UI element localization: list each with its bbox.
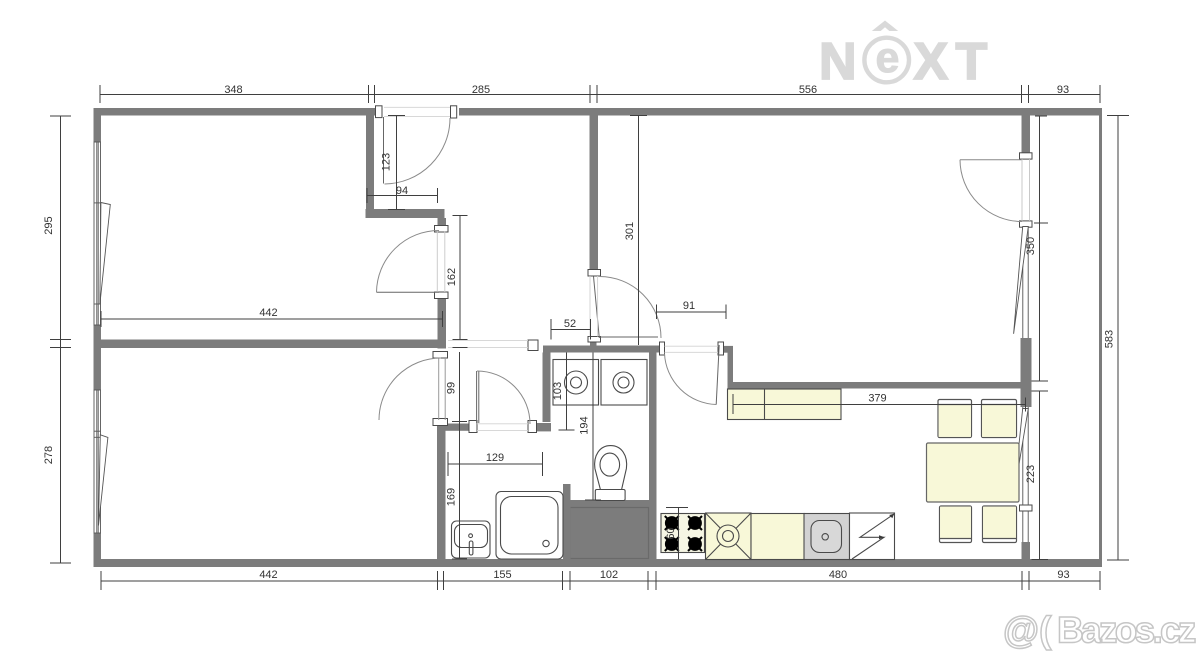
svg-text:e: e — [876, 34, 900, 82]
svg-text:348: 348 — [224, 84, 242, 96]
svg-text:93: 93 — [1057, 84, 1069, 96]
svg-text:52: 52 — [564, 318, 576, 330]
svg-text:480: 480 — [829, 569, 847, 581]
svg-text:102: 102 — [600, 569, 618, 581]
svg-text:295: 295 — [43, 216, 55, 234]
svg-text:442: 442 — [259, 307, 277, 319]
svg-text:X: X — [914, 33, 949, 91]
svg-text:194: 194 — [579, 416, 591, 434]
svg-text:@(: @( — [1003, 610, 1052, 651]
svg-text:Bazos.cz: Bazos.cz — [1057, 610, 1196, 651]
svg-text:301: 301 — [624, 222, 636, 240]
svg-text:93: 93 — [1057, 569, 1069, 581]
svg-text:129: 129 — [486, 452, 504, 464]
svg-text:583: 583 — [1104, 330, 1116, 348]
svg-text:285: 285 — [472, 84, 490, 96]
svg-text:99: 99 — [446, 382, 458, 394]
svg-text:60: 60 — [665, 527, 677, 539]
svg-text:T: T — [956, 33, 988, 91]
svg-text:379: 379 — [868, 393, 886, 405]
svg-text:123: 123 — [381, 153, 393, 171]
svg-text:103: 103 — [552, 382, 564, 400]
svg-text:223: 223 — [1025, 465, 1037, 483]
svg-text:169: 169 — [446, 488, 458, 506]
svg-text:94: 94 — [396, 185, 408, 197]
svg-text:350: 350 — [1025, 237, 1037, 255]
svg-text:556: 556 — [799, 84, 817, 96]
svg-text:91: 91 — [683, 300, 695, 312]
svg-text:162: 162 — [446, 268, 458, 286]
svg-text:278: 278 — [43, 446, 55, 464]
svg-text:N: N — [819, 33, 857, 91]
svg-text:155: 155 — [493, 569, 511, 581]
svg-text:442: 442 — [259, 569, 277, 581]
